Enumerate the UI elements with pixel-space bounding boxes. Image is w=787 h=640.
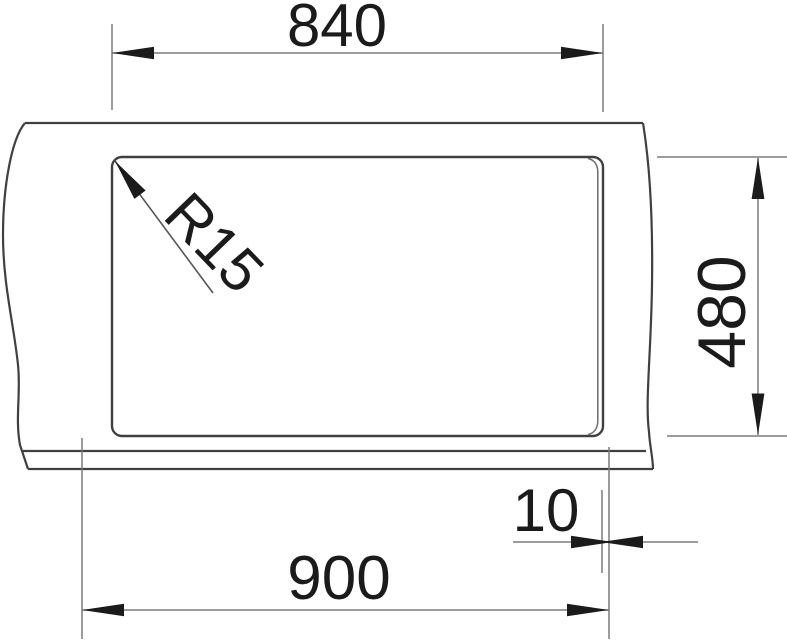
technical-drawing-canvas: 840 480 900 10 R15: [0, 0, 787, 640]
arrow-900-left-icon: [82, 604, 124, 616]
dim-label-overall-width: 900: [214, 548, 464, 610]
arrowheads: [82, 47, 764, 616]
cutout-right-inner-edge-line: [588, 159, 598, 435]
arrow-840-left-icon: [112, 47, 154, 59]
countertop-outline: [3, 123, 653, 469]
dim-label-cutout-width: 840: [212, 0, 462, 56]
dim-label-cutout-depth: 480: [688, 187, 756, 437]
arrow-900-right-icon: [567, 604, 609, 616]
drawing-linework: [0, 0, 787, 640]
dim-label-edge-offset: 10: [446, 481, 646, 541]
arrow-840-right-icon: [561, 47, 603, 59]
countertop-left-break-line: [3, 123, 28, 469]
countertop-right-break-line: [643, 123, 653, 469]
dimension-lines: [82, 24, 787, 639]
